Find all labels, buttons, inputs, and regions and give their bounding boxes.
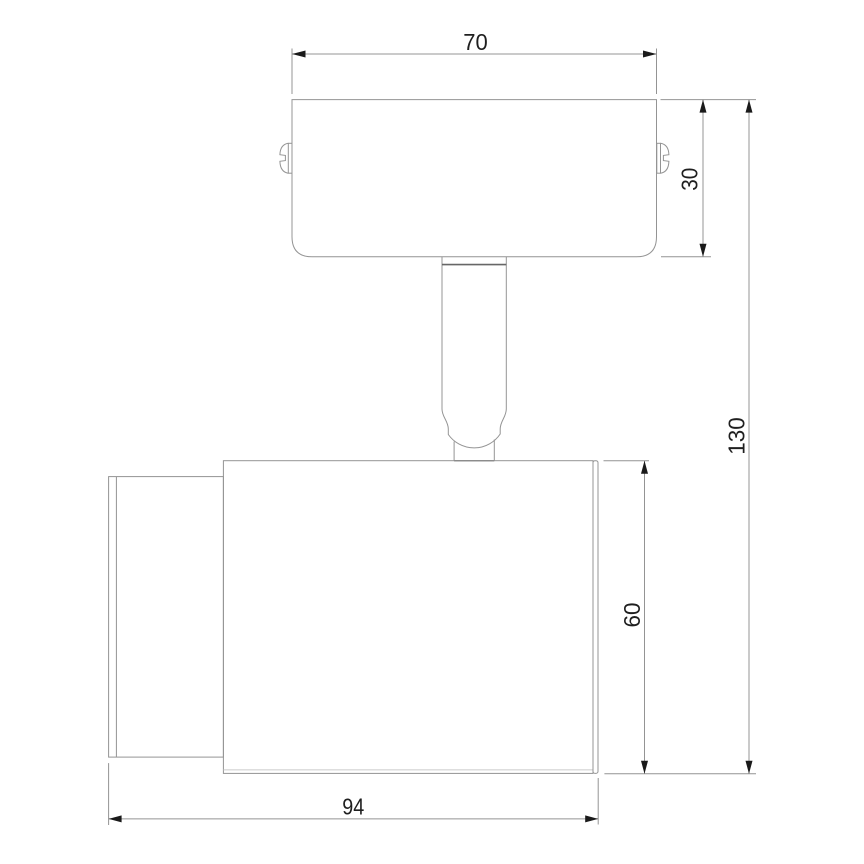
svg-text:30: 30 [677, 168, 703, 191]
svg-text:60: 60 [619, 603, 645, 628]
svg-text:70: 70 [463, 29, 488, 55]
svg-text:130: 130 [723, 417, 749, 455]
svg-text:94: 94 [342, 794, 364, 820]
